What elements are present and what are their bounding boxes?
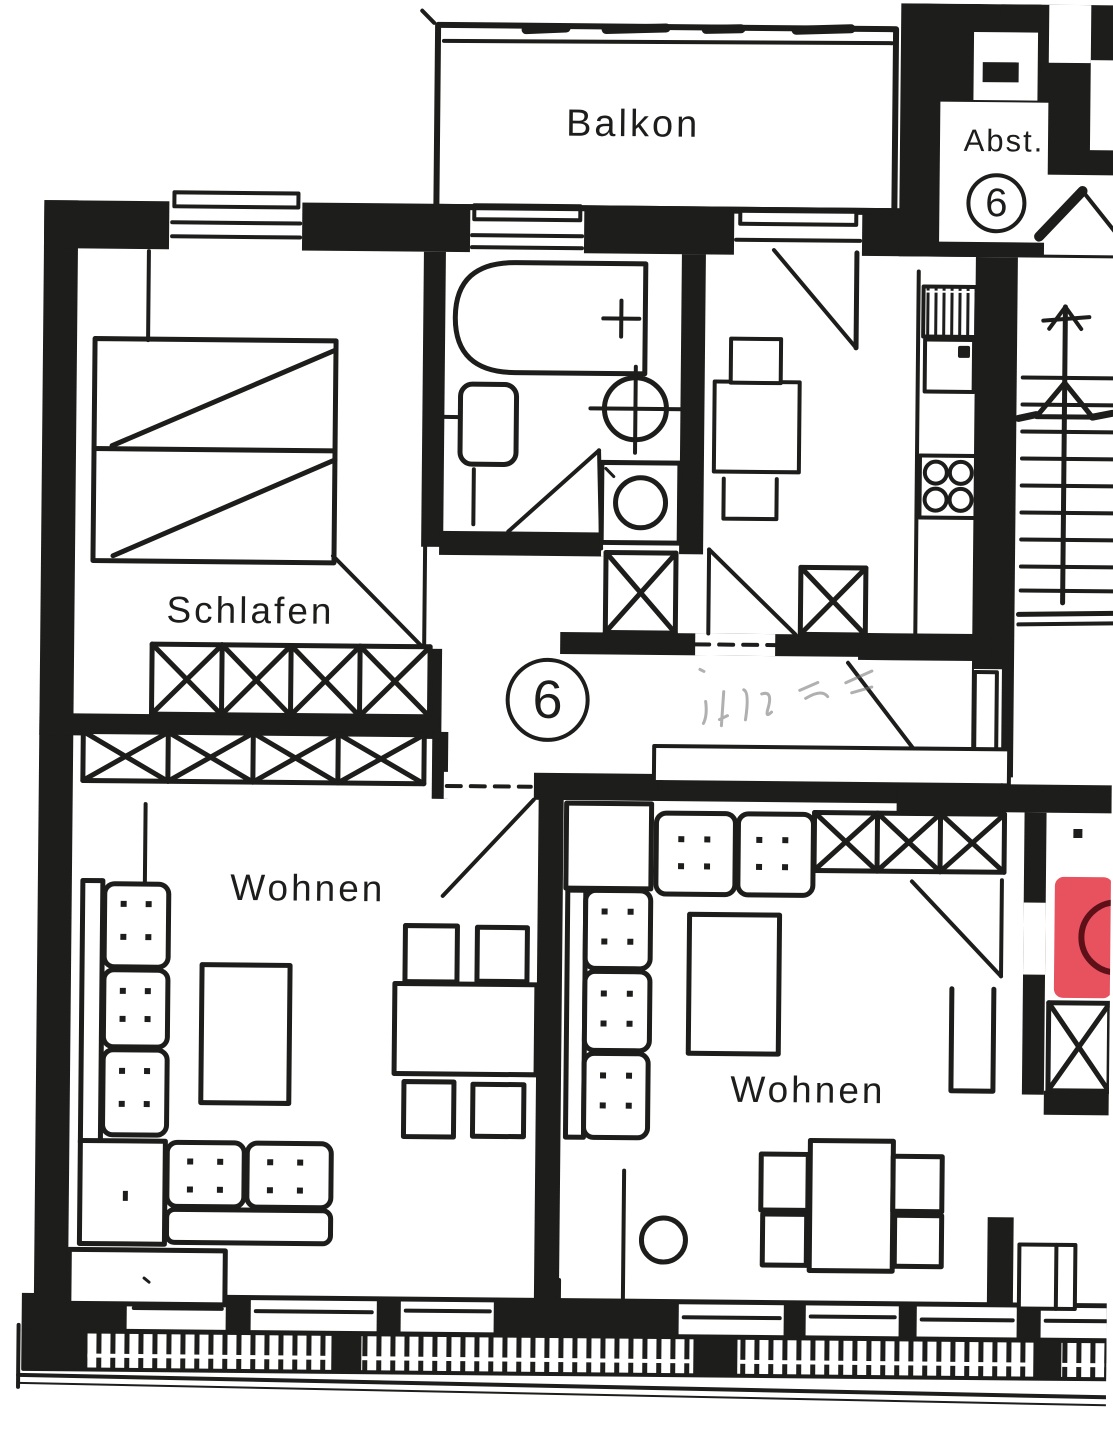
kitchen-table	[714, 382, 800, 473]
plant	[641, 1218, 685, 1262]
side-table	[69, 1249, 226, 1304]
coffee-table	[201, 965, 290, 1104]
sink-drainer	[923, 287, 976, 338]
schlafen-room	[91, 251, 433, 717]
shaft	[1048, 1003, 1110, 1092]
dining-set	[760, 1140, 942, 1272]
room-label-wohnen-left: Wohnen	[230, 867, 386, 910]
room-label-abst: Abst.	[964, 123, 1045, 160]
coffee-table	[688, 914, 779, 1054]
dining-set	[393, 925, 537, 1137]
room-label-balkon: Balkon	[566, 103, 701, 147]
staircase	[1016, 306, 1113, 625]
wardrobe	[814, 812, 1005, 872]
pencil-note	[699, 669, 872, 727]
unit-badge-abst: 6	[966, 173, 1027, 234]
unit-badge-hall: 6	[505, 658, 590, 743]
washbasin	[460, 384, 517, 465]
counter-edge	[915, 271, 918, 633]
balcony-door-swing	[773, 250, 857, 348]
bathroom	[443, 262, 684, 549]
wohnen-left-door-swing	[443, 799, 534, 897]
kitchen-chair	[723, 479, 776, 520]
wardrobe	[151, 644, 430, 717]
wohnen-left-room	[69, 731, 564, 1308]
floor-plan-scan: Balkon Abst. 6 Schlafen 6 Wohnen Wohnen	[0, 0, 1113, 1440]
room-label-schlafen: Schlafen	[166, 589, 334, 633]
wc-crosshair-icon	[590, 366, 683, 453]
schlafen-door-swing	[332, 546, 425, 649]
wall-shelf	[951, 989, 994, 1091]
room-label-wohnen-right: Wohnen	[730, 1069, 886, 1112]
wohnen-right-door-swing	[911, 879, 1002, 976]
kitchen-chair	[731, 339, 781, 383]
wardrobe	[83, 731, 424, 783]
shaft	[605, 552, 676, 633]
partial-fixture	[1019, 1244, 1076, 1309]
shaft	[800, 567, 866, 635]
plan-sheet: Balkon Abst. 6 Schlafen 6 Wohnen Wohnen	[0, 0, 1113, 1440]
kitchen-door-swing	[708, 549, 796, 634]
